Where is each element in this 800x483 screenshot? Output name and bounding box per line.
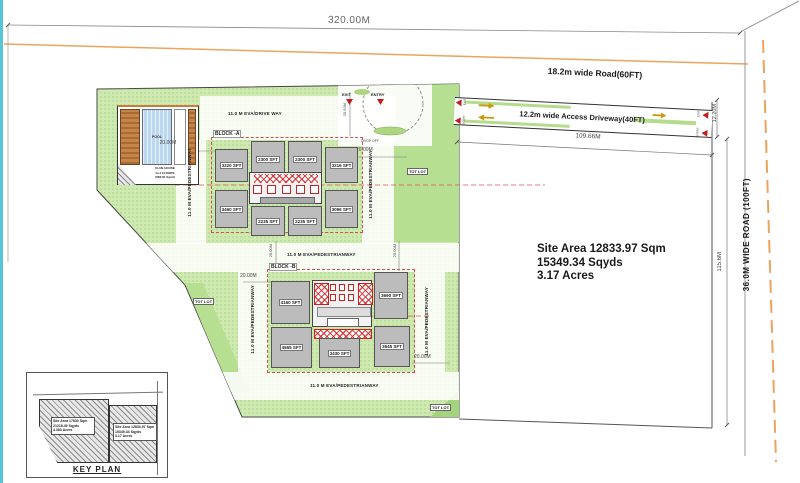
block-a-unit-1: 3220 SFT [215, 149, 248, 182]
block-b-label: BLOCK -B [269, 263, 297, 271]
lift-box-icon [267, 185, 276, 194]
unit-area-label: 3216 SFT [330, 162, 354, 169]
tot-lot-west-label: TOT LOT [193, 298, 214, 305]
site-area-line1: Site Area 12833.97 Sqm [537, 243, 666, 257]
dim-20m-left-a-label: 20.00M [148, 140, 188, 146]
pedestrian-way-right-a-label: 11.0 M EVA/PEDESTRIANWAY [368, 150, 373, 219]
key-plan-west-text: Site Area 17830 Sqm 21218.49 Sqyds 4.383… [51, 417, 95, 435]
block-b-unit-5: 3645 SFT [374, 326, 410, 367]
lift-box-icon [330, 284, 336, 291]
lift-box-icon [296, 185, 305, 194]
lift-box-icon [348, 294, 354, 301]
site-area-line3: 3.17 Acres [537, 270, 666, 284]
eva-band-right-a [362, 140, 394, 244]
club-house-text: CLUB HOUSE G+4 FLOORS (683.81 Sqmt) [136, 166, 194, 180]
entry-marker-west-icon [455, 117, 461, 124]
lift-box-icon [282, 185, 291, 194]
drive-way-label: 11.0 M EVA/DRIVE WAY [228, 111, 282, 116]
pedestrian-way-right-b-label: 11.0 M EVA/PEDESTRIANWAY [424, 287, 429, 356]
lift-box-icon [348, 284, 354, 291]
core-stair-hatch [314, 283, 329, 305]
tot-lot-east-label: TOT LOT [407, 168, 428, 175]
unit-area-label: 4565 SFT [280, 344, 304, 351]
dim-2093m-label: 20.93M [342, 103, 347, 116]
core-corridor [260, 197, 315, 204]
club-house-hatch [118, 163, 136, 185]
exit-west-label: EXIT [463, 98, 467, 105]
core-lift-grid [330, 284, 356, 302]
key-plan: Site Area 17830 Sqm 21218.49 Sqyds 4.383… [26, 372, 168, 478]
key-plan-east-line3: 3.17 Acres [115, 434, 155, 439]
dim-line-320m [8, 25, 740, 33]
dim-20m-bottom-b-label: 20.00M [414, 354, 431, 360]
block-a-unit-5: 3460 SFT [215, 190, 248, 228]
pool-deck-left [120, 109, 140, 165]
unit-area-label: 3430 SFT [328, 350, 352, 357]
block-b-unit-1: 4160 SFT [271, 281, 310, 324]
unit-area-label: 2300 SFT [293, 156, 317, 163]
core-stair-hatch [358, 283, 373, 305]
planter-small [354, 89, 370, 95]
block-b-unit-4: 3430 SFT [319, 338, 360, 368]
site-area-text: Site Area 12833.97 Sqm 15349.34 Sqyds 3.… [537, 243, 666, 284]
pool-label: POOL [152, 135, 162, 139]
entry-west-label: ENTRY [462, 115, 467, 125]
pool-walkway [174, 109, 186, 165]
exit-top-label: EXIT [342, 92, 351, 97]
club-house-line3: (683.81 Sqmt) [136, 175, 194, 180]
key-plan-east-text: Site Area 12833.97 Sqm 15349.34 Sqyds 3.… [113, 423, 157, 441]
plot-south-line [459, 419, 712, 428]
key-plan-west-line1: Site Area 17830 Sqm [53, 419, 93, 424]
entry-east-label: ENTRY [695, 127, 700, 137]
pool: POOL [142, 109, 172, 165]
block-b-unit-3: 4565 SFT [271, 327, 312, 368]
pedestrian-way-left-b-label: 11.0 M EVA/PEDESTRIANWAY [250, 285, 255, 354]
block-a-unit-8: 3096 SFT [325, 190, 358, 228]
site-plan-drawing: 320.00M 18.2m wide Road(60FT) 12.2m wide… [0, 0, 800, 483]
lift-box-icon [310, 185, 319, 194]
exit-east-label: EXIT [696, 110, 700, 117]
block-a-label: BLOCK -A [213, 130, 241, 138]
dim-line-10966m [457, 142, 712, 155]
pedestrian-way-mid-label: 11.0 M EVA/PEDESTRIANWAY [287, 252, 356, 257]
unit-area-label: 3690 SFT [379, 292, 403, 299]
core-lift-row [253, 185, 319, 195]
block-b-core [312, 280, 372, 327]
unit-area-label: 2235 SFT [293, 218, 317, 225]
block-a-unit-7: 2235 SFT [288, 206, 322, 236]
dim-20m-left-b-label: 20.00M [240, 273, 257, 279]
property-line-orange [4, 44, 748, 64]
corner-diagonal [742, 1, 799, 31]
block-a-unit-4: 3216 SFT [325, 147, 358, 183]
dim-20m-mid-right-label: 20.00M [392, 244, 397, 257]
unit-area-label: 3220 SFT [220, 162, 244, 169]
tot-lot-corner-label: TOT LOT [430, 404, 451, 411]
core-stair-hatch [254, 174, 318, 183]
lift-box-icon [253, 185, 262, 194]
lift-box-icon [330, 294, 336, 301]
pedestrian-way-left-a-label: 11.0 M EVA/PEDESTRIANWAY [187, 148, 192, 217]
unit-area-label: 3096 SFT [330, 206, 354, 213]
lift-box-icon [339, 294, 345, 301]
right-road-label: 36.0M WIDE ROAD (100FT) [742, 178, 751, 291]
pedestrian-way-bottom-label: 11.0 M EVA/PEDESTRIANWAY [310, 383, 379, 388]
unit-area-label: 3645 SFT [380, 343, 404, 350]
entry-marker-east-icon [701, 130, 707, 137]
unit-area-label: 3460 SFT [220, 206, 244, 213]
block-a-core [249, 172, 322, 204]
dim-20m-mid-left-label: 20.00M [268, 244, 273, 257]
exit-marker-east-icon [702, 112, 708, 119]
exit-marker-west-icon [456, 99, 462, 106]
drop-off-label: DROP OFF [361, 139, 379, 143]
key-plan-west-line3: 4.383 Acres [53, 428, 93, 433]
core-lobby [327, 318, 359, 327]
lift-box-icon [339, 284, 345, 291]
road-centerline-dashed [763, 40, 776, 462]
page-edge-strip [0, 0, 3, 483]
block-a-unit-6: 2235 SFT [251, 206, 285, 236]
dim-1220m-label: 12.20M [712, 104, 718, 122]
site-area-line2: 15349.34 Sqyds [537, 257, 666, 271]
dim-1156m-label: 115.6M [717, 252, 723, 272]
unit-area-label: 2235 SFT [256, 218, 280, 225]
core-corridor [317, 307, 371, 317]
key-plan-east-line1: Site Area 12833.97 Sqm [115, 425, 155, 430]
dim-320m-label: 320.00M [328, 15, 371, 26]
unit-area-label: 2300 SFT [256, 156, 280, 163]
block-b-unit-2: 3690 SFT [374, 272, 408, 319]
key-plan-title: KEY PLAN [47, 465, 147, 474]
key-plan-road-line-vertical [157, 381, 158, 475]
entry-top-label: ENTRY [371, 92, 384, 97]
key-plan-road-line [33, 392, 163, 396]
unit-area-label: 4160 SFT [279, 299, 303, 306]
planter-oval [374, 127, 406, 135]
